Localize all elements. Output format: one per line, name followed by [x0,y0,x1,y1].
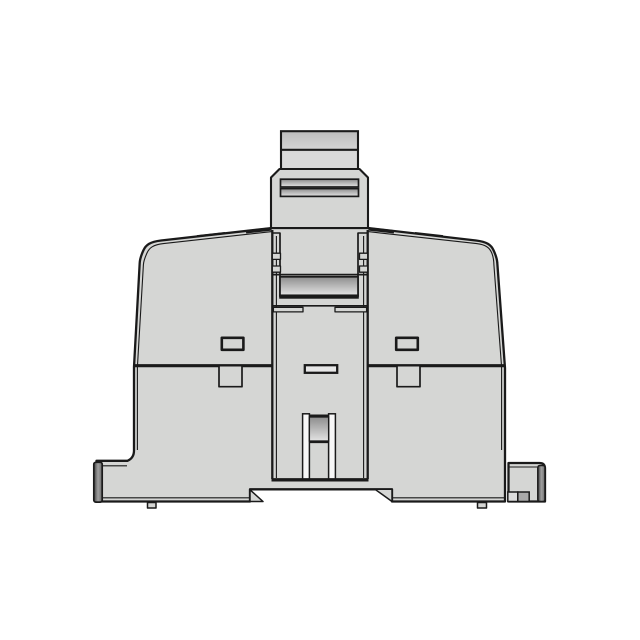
clamp-ridge-2 [281,189,359,197]
latch-tab-right [397,366,420,387]
release-roller [309,417,328,441]
plunger-tab [281,131,358,172]
channel-marker-slot [305,365,337,373]
clamp-ridge-1 [281,179,359,187]
release-slot-bar-left [303,414,310,480]
foot-latch-square-light [508,492,518,502]
rail-notch [250,489,392,501]
foot-right-end-cap [538,466,545,502]
vent-slot-left [222,338,244,350]
foot-pad-left [148,503,157,509]
foot-left-end-cap [94,462,102,502]
clamp-block [271,169,368,228]
latch-tab-left [219,366,242,387]
foot-latch-square-gray [518,492,529,502]
vent-slot-right [396,338,418,350]
top-clamp [271,131,368,228]
clamp-roller-band [280,277,358,296]
release-slot-bar-right [329,414,336,480]
din-module-figure [0,0,640,640]
din-module-drawing [0,0,640,640]
foot-pad-right [478,503,487,509]
